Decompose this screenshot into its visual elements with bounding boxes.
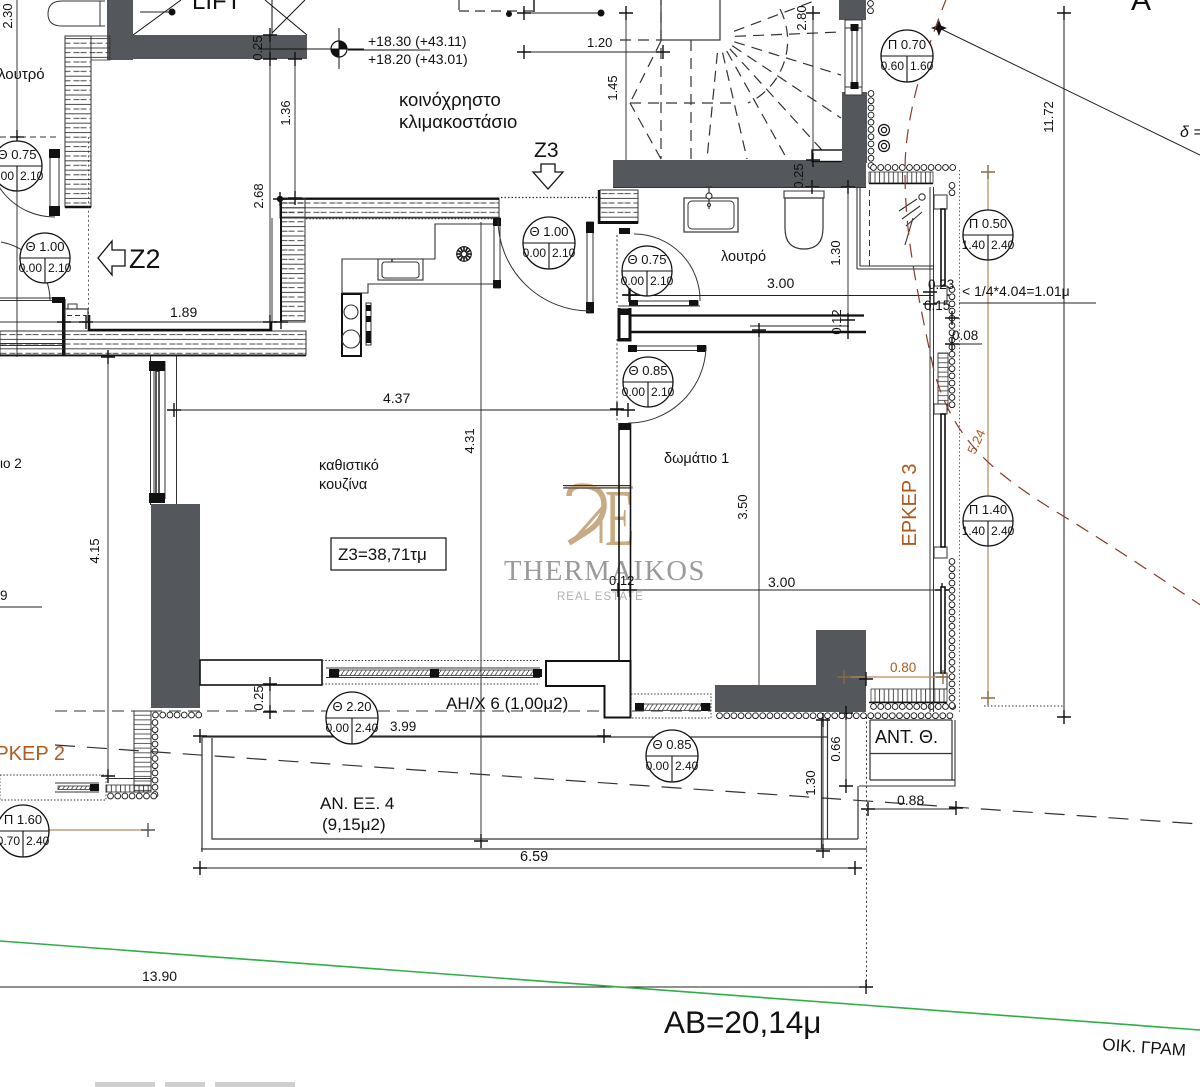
svg-text:Π 0.70: Π 0.70 [888, 37, 926, 52]
svg-text:2.40: 2.40 [355, 721, 379, 735]
svg-text:(9,15μ2): (9,15μ2) [322, 815, 386, 834]
svg-text:2.10: 2.10 [651, 385, 675, 399]
svg-text:0.00: 0.00 [19, 261, 43, 275]
svg-text:0.00: 0.00 [523, 246, 547, 260]
svg-text:0.25: 0.25 [251, 685, 266, 710]
svg-text:1.40: 1.40 [962, 524, 986, 538]
svg-text:0.00: 0.00 [0, 169, 14, 183]
svg-text:0.25: 0.25 [250, 35, 265, 60]
svg-text:2.10: 2.10 [650, 274, 674, 288]
svg-text:Θ 0.85: Θ 0.85 [652, 737, 691, 752]
svg-text:1.89: 1.89 [170, 304, 197, 320]
svg-text:ΕΡΚΕΡ 3: ΕΡΚΕΡ 3 [899, 463, 921, 546]
svg-text:Θ 1.00: Θ 1.00 [25, 239, 64, 254]
svg-text:Θ 2.20: Θ 2.20 [332, 699, 371, 714]
svg-text:λουτρό: λουτρό [0, 66, 45, 83]
svg-text:0.12: 0.12 [829, 309, 844, 334]
svg-text:Z3=38,71τμ: Z3=38,71τμ [338, 545, 427, 564]
svg-text:1.36: 1.36 [278, 100, 293, 125]
svg-text:Θ 0.75: Θ 0.75 [627, 252, 666, 267]
svg-text:4.37: 4.37 [383, 390, 410, 406]
svg-text:2.40: 2.40 [26, 834, 50, 848]
svg-text:4.15: 4.15 [87, 538, 102, 563]
svg-text:2.30: 2.30 [0, 3, 15, 28]
svg-text:Z3: Z3 [534, 139, 559, 162]
svg-text:< 1/4*4.04=1.01μ: < 1/4*4.04=1.01μ [962, 283, 1070, 299]
svg-text:9: 9 [0, 588, 8, 603]
svg-text:καθιστικό: καθιστικό [319, 458, 379, 474]
svg-text:+18.30 (+43.11): +18.30 (+43.11) [368, 33, 467, 49]
svg-text:0.25: 0.25 [791, 163, 806, 188]
svg-text:13.90: 13.90 [142, 968, 177, 984]
svg-text:+18.20 (+43.01): +18.20 (+43.01) [368, 51, 468, 67]
svg-text:Θ 0.75: Θ 0.75 [0, 147, 37, 162]
svg-text:5.24: 5.24 [964, 427, 988, 456]
svg-text:6.59: 6.59 [520, 849, 548, 865]
svg-text:1.20: 1.20 [587, 35, 612, 50]
svg-text:0.00: 0.00 [622, 385, 646, 399]
svg-text:2.80: 2.80 [794, 5, 809, 30]
svg-text:Π 1.40: Π 1.40 [969, 502, 1007, 517]
svg-text:2.40: 2.40 [675, 759, 699, 773]
svg-text:11.72: 11.72 [1041, 101, 1056, 133]
svg-text:1.40: 1.40 [962, 238, 986, 252]
svg-text:0.70: 0.70 [0, 834, 20, 848]
svg-text:1.45: 1.45 [605, 75, 620, 100]
svg-text:AN. ΕΞ. 4: AN. ΕΞ. 4 [320, 794, 394, 813]
svg-text:0.80: 0.80 [890, 660, 916, 675]
svg-text:3.99: 3.99 [390, 719, 416, 734]
svg-text:ΑΝΤ. Θ.: ΑΝΤ. Θ. [875, 727, 938, 747]
svg-text:ιο 2: ιο 2 [0, 456, 22, 471]
svg-text:LIFT: LIFT [192, 0, 242, 15]
svg-text:δ =: δ = [1180, 124, 1200, 141]
svg-text:ΕΡΚΕΡ 2: ΕΡΚΕΡ 2 [0, 743, 65, 765]
svg-text:0.23: 0.23 [928, 277, 954, 292]
svg-text:AH/X 6 (1,00μ2): AH/X 6 (1,00μ2) [446, 694, 568, 713]
svg-text:Π 1.60: Π 1.60 [4, 812, 42, 827]
svg-text:3.00: 3.00 [768, 574, 795, 590]
svg-text:0.08: 0.08 [952, 328, 978, 343]
svg-text:Π 0.50: Π 0.50 [969, 216, 1007, 231]
svg-text:0.88: 0.88 [897, 792, 924, 808]
svg-text:Z2: Z2 [129, 244, 161, 274]
svg-text:κοινόχρηστο: κοινόχρηστο [399, 89, 501, 110]
svg-text:κλιμακοστάσιο: κλιμακοστάσιο [399, 111, 517, 132]
svg-text:0.00: 0.00 [646, 759, 670, 773]
svg-text:2.10: 2.10 [48, 261, 72, 275]
svg-text:2.40: 2.40 [991, 238, 1015, 252]
svg-text:λουτρό: λουτρό [721, 249, 766, 265]
svg-text:2.10: 2.10 [552, 246, 576, 260]
svg-text:0.00: 0.00 [326, 721, 350, 735]
svg-text:2.68: 2.68 [251, 183, 266, 208]
svg-text:1.30: 1.30 [803, 770, 818, 795]
svg-text:Θ 1.00: Θ 1.00 [529, 224, 568, 239]
svg-text:3.00: 3.00 [767, 275, 794, 291]
svg-text:0.60: 0.60 [881, 59, 905, 73]
svg-text:κουζίνα: κουζίνα [319, 477, 367, 493]
svg-text:0.00: 0.00 [621, 274, 645, 288]
svg-text:Θ 0.85: Θ 0.85 [628, 363, 667, 378]
svg-text:4.31: 4.31 [462, 428, 477, 453]
svg-text:ΟΙΚ. ΓΡΑΜ: ΟΙΚ. ΓΡΑΜ [1102, 1035, 1187, 1060]
svg-text:0.66: 0.66 [828, 736, 843, 761]
svg-text:0.12: 0.12 [609, 573, 634, 588]
svg-text:2.40: 2.40 [991, 524, 1015, 538]
svg-text:3.50: 3.50 [735, 494, 750, 519]
svg-text:AB=20,14μ: AB=20,14μ [664, 1004, 821, 1040]
svg-text:THERMAIKOS: THERMAIKOS [504, 556, 706, 587]
svg-text:1.60: 1.60 [910, 59, 934, 73]
svg-text:0.15: 0.15 [924, 298, 950, 313]
svg-text:δωμάτιο 1: δωμάτιο 1 [664, 451, 729, 467]
svg-text:2.10: 2.10 [20, 169, 44, 183]
svg-text:A: A [1131, 0, 1151, 17]
svg-text:1.30: 1.30 [828, 240, 843, 265]
